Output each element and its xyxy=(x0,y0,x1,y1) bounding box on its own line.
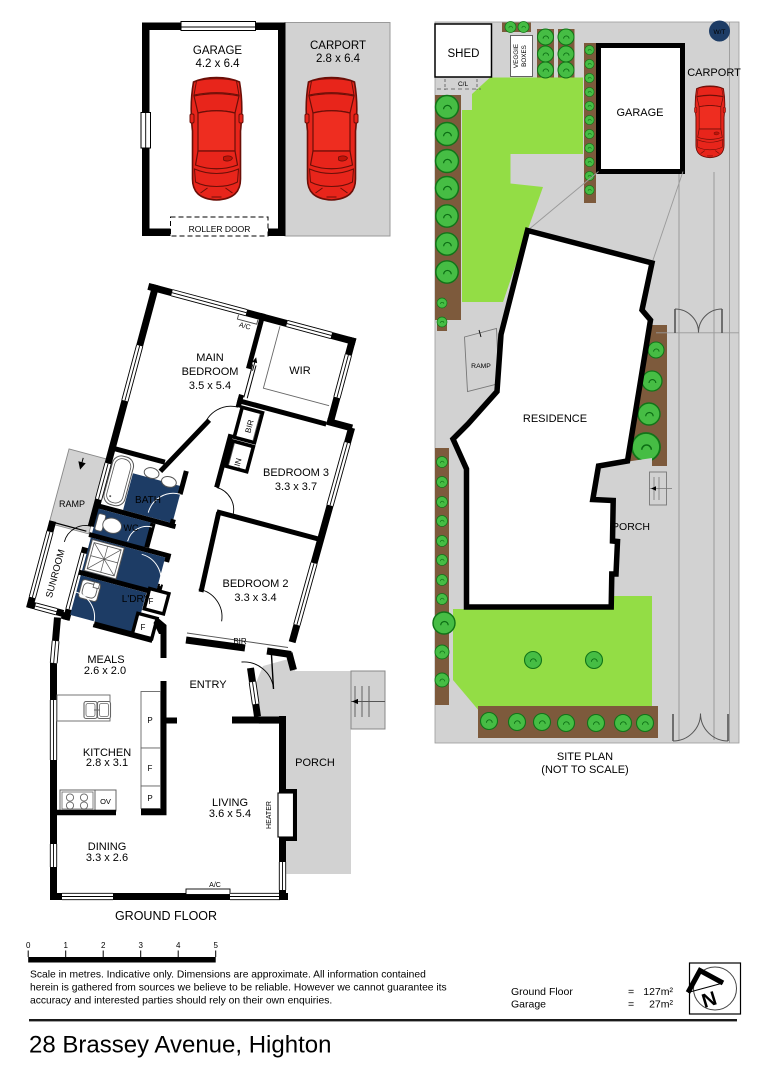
svg-text:3: 3 xyxy=(138,941,143,950)
svg-text:PORCH: PORCH xyxy=(612,521,650,533)
svg-text:OV: OV xyxy=(100,797,111,806)
svg-text:3.3 x 3.7: 3.3 x 3.7 xyxy=(275,481,317,493)
svg-text:27m²: 27m² xyxy=(649,999,673,1011)
svg-text:BATH: BATH xyxy=(135,495,161,506)
svg-text:herein is gathered from source: herein is gathered from sources we belie… xyxy=(30,983,447,994)
svg-text:Ground Floor: Ground Floor xyxy=(511,986,573,998)
svg-text:GARAGE: GARAGE xyxy=(616,107,663,119)
svg-text:L'DRY: L'DRY xyxy=(122,594,151,605)
svg-text:28 Brassey Avenue, Highton: 28 Brassey Avenue, Highton xyxy=(29,1032,331,1059)
svg-text:Garage: Garage xyxy=(511,999,546,1011)
svg-text:2: 2 xyxy=(101,941,106,950)
svg-text:W/T: W/T xyxy=(714,29,726,36)
svg-text:MAIN: MAIN xyxy=(196,352,224,364)
svg-text:BEDROOM: BEDROOM xyxy=(182,366,239,378)
svg-text:F: F xyxy=(148,764,153,773)
svg-text:F: F xyxy=(149,597,154,606)
svg-text:1: 1 xyxy=(63,941,68,950)
svg-text:=: = xyxy=(628,999,634,1011)
svg-text:2.6 x 2.0: 2.6 x 2.0 xyxy=(84,665,126,677)
svg-text:4: 4 xyxy=(176,941,181,950)
svg-text:127m²: 127m² xyxy=(643,986,673,998)
svg-text:WC: WC xyxy=(124,523,139,533)
svg-text:BOXES: BOXES xyxy=(521,45,528,67)
svg-text:BEDROOM 2: BEDROOM 2 xyxy=(222,578,288,590)
svg-text:GROUND FLOOR: GROUND FLOOR xyxy=(115,909,217,923)
svg-text:0: 0 xyxy=(26,941,31,950)
svg-text:A/C: A/C xyxy=(238,322,251,332)
svg-text:ROLLER DOOR: ROLLER DOOR xyxy=(189,224,251,234)
svg-text:RAMP: RAMP xyxy=(471,363,491,370)
svg-text:SUNROOM: SUNROOM xyxy=(44,548,67,599)
svg-text:SITE PLAN: SITE PLAN xyxy=(557,751,613,763)
svg-text:2.8 x 3.1: 2.8 x 3.1 xyxy=(86,757,128,769)
svg-text:4.2 x 6.4: 4.2 x 6.4 xyxy=(195,58,240,70)
svg-text:C/L: C/L xyxy=(458,81,469,88)
svg-text:CARPORT: CARPORT xyxy=(310,40,366,52)
svg-text:accuracy and interested partie: accuracy and interested parties should r… xyxy=(30,996,332,1007)
svg-text:GARAGE: GARAGE xyxy=(193,45,243,57)
svg-text:HEATER: HEATER xyxy=(266,801,273,829)
svg-text:P: P xyxy=(147,794,152,803)
svg-text:RESIDENCE: RESIDENCE xyxy=(523,413,587,425)
svg-text:PORCH: PORCH xyxy=(295,757,335,769)
svg-text:P: P xyxy=(147,716,152,725)
svg-text:3.3 x 2.6: 3.3 x 2.6 xyxy=(86,852,128,864)
svg-text:WIR: WIR xyxy=(289,365,310,377)
svg-text:2.8 x 6.4: 2.8 x 6.4 xyxy=(316,53,361,65)
svg-text:3.6 x 5.4: 3.6 x 5.4 xyxy=(209,808,251,820)
svg-text:SHED: SHED xyxy=(448,48,480,60)
svg-text:3.3 x 3.4: 3.3 x 3.4 xyxy=(234,592,276,604)
svg-text:=: = xyxy=(628,986,634,998)
svg-text:A/C: A/C xyxy=(209,882,221,889)
svg-text:ENTRY: ENTRY xyxy=(189,679,227,691)
svg-text:BIR: BIR xyxy=(233,637,247,646)
svg-text:5: 5 xyxy=(213,941,218,950)
svg-text:RAMP: RAMP xyxy=(59,499,85,509)
svg-text:3.5 x 5.4: 3.5 x 5.4 xyxy=(189,380,231,392)
svg-text:VEGGIE: VEGGIE xyxy=(513,44,520,68)
svg-text:BEDROOM 3: BEDROOM 3 xyxy=(263,467,329,479)
svg-text:F: F xyxy=(141,623,146,632)
svg-text:(NOT TO SCALE): (NOT TO SCALE) xyxy=(541,764,628,776)
svg-text:CARPORT: CARPORT xyxy=(687,67,741,79)
svg-text:Scale in metres. Indicative on: Scale in metres. Indicative only. Dimens… xyxy=(30,970,426,981)
